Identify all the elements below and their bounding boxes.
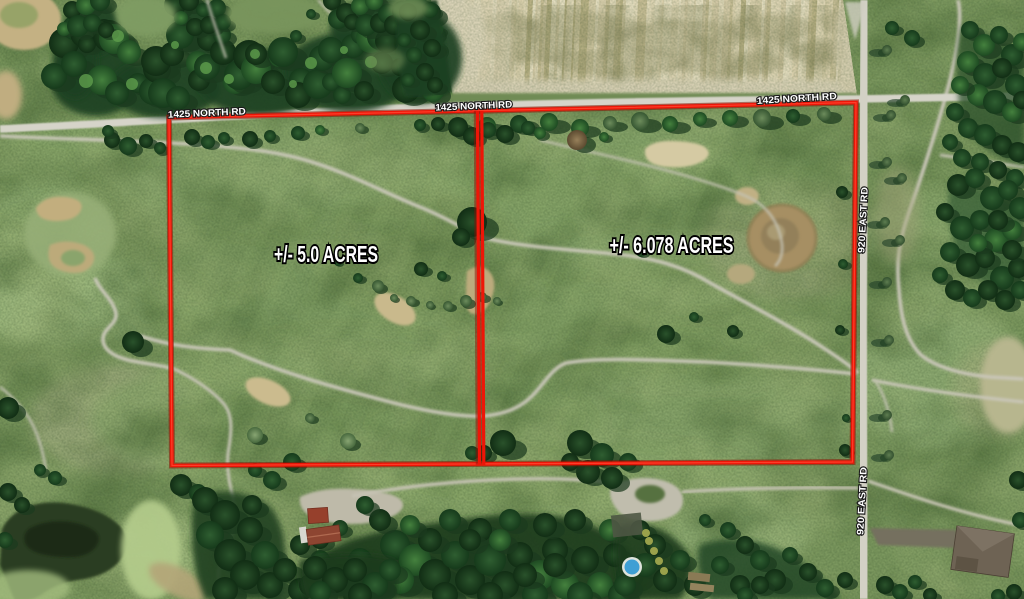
svg-text:+/- 5.0 ACRES: +/- 5.0 ACRES: [274, 241, 378, 267]
svg-text:+/- 6.078 ACRES: +/- 6.078 ACRES: [610, 232, 734, 258]
